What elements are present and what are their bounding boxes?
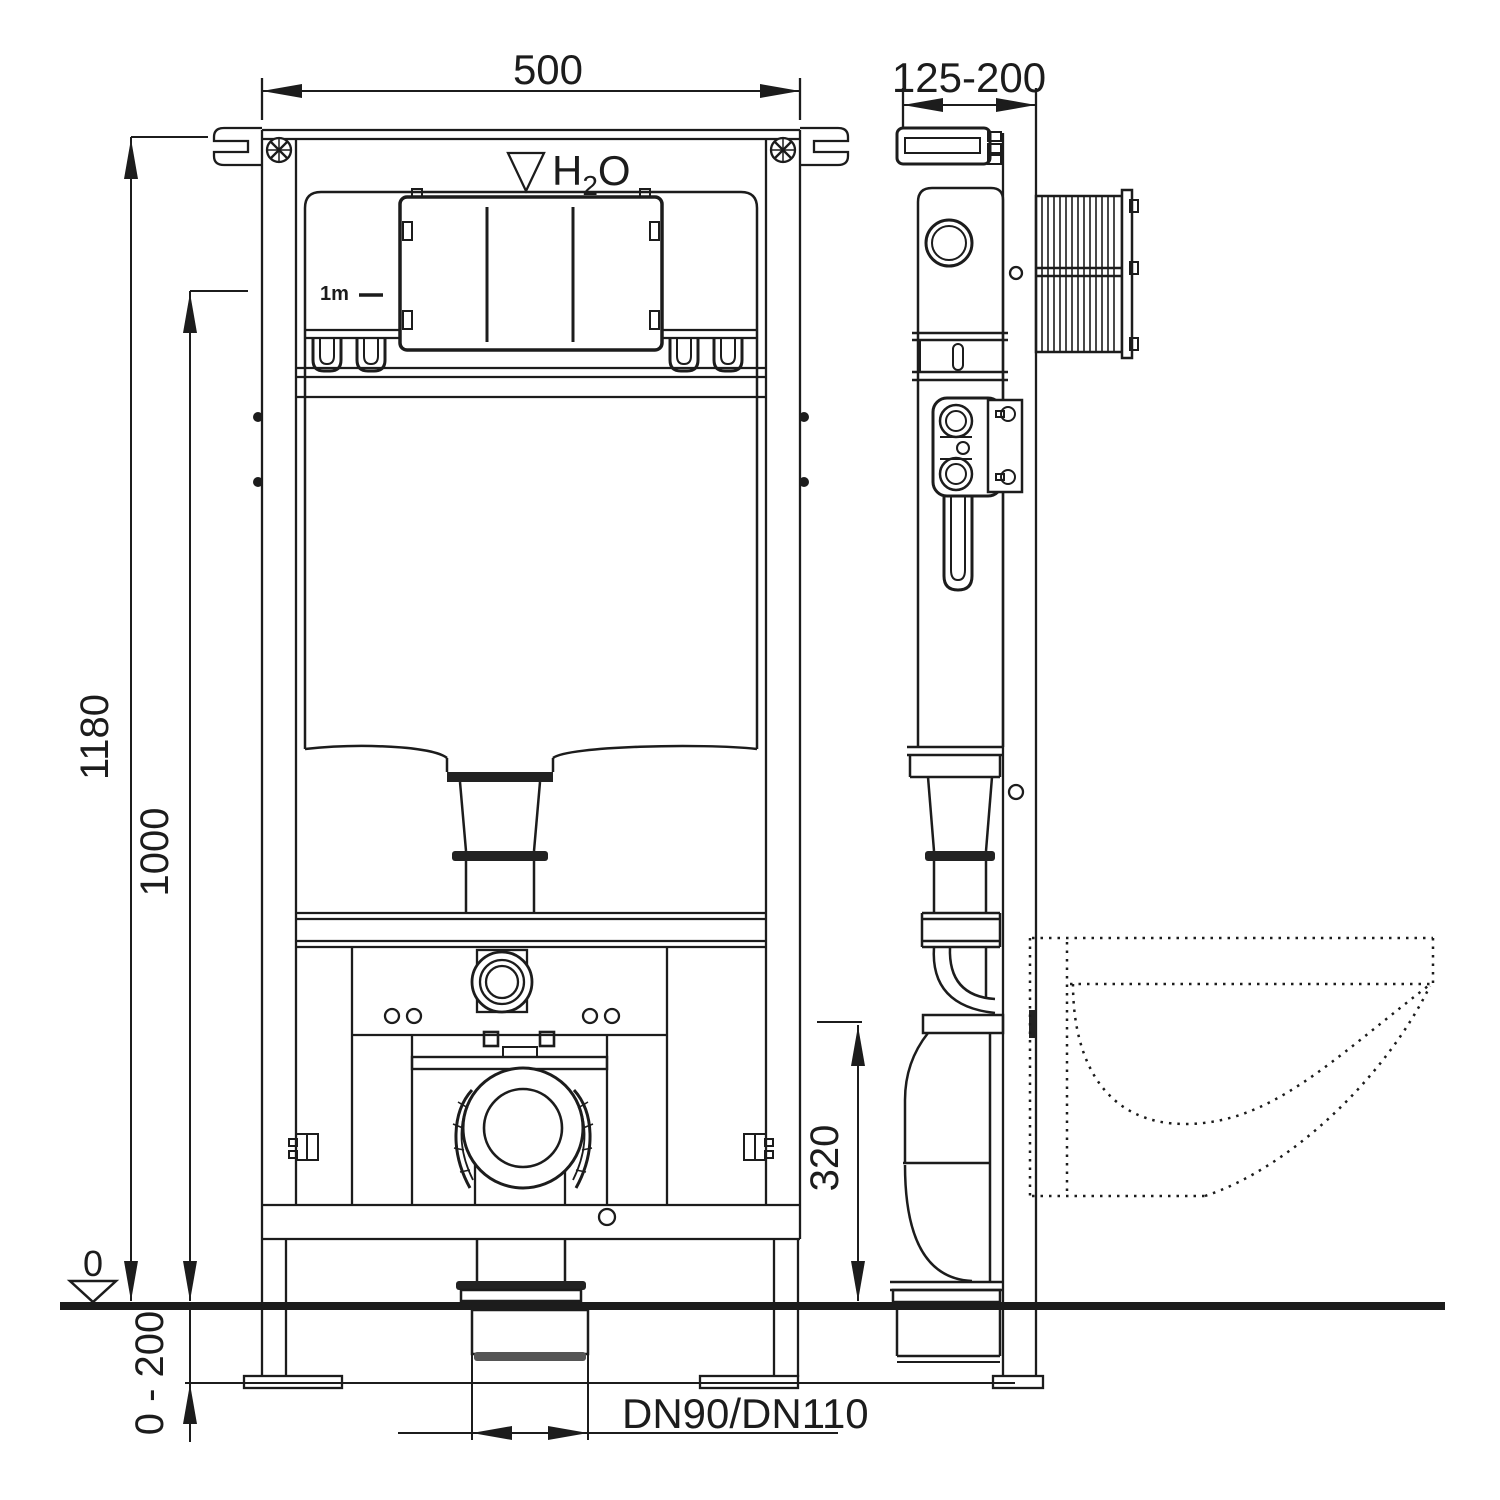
floor-line bbox=[60, 1302, 1445, 1310]
inspection-access-panel bbox=[400, 189, 662, 350]
water-sub: 2 bbox=[582, 170, 598, 201]
label-drain-diameter: DN90/DN110 bbox=[622, 1390, 869, 1437]
water-h: H bbox=[552, 147, 582, 194]
wall-rail-bracket bbox=[897, 128, 1001, 164]
anchor-screw-right-icon bbox=[771, 138, 795, 162]
flush-valve-outlet bbox=[447, 772, 553, 782]
label-floor-level: 0 bbox=[83, 1243, 103, 1284]
installation-frame-drawing: 500 125-200 1180 1000 320 0 - 200 0 DN90… bbox=[0, 0, 1500, 1500]
label-upper-height: 1000 bbox=[133, 808, 177, 897]
label-total-height: 1180 bbox=[73, 694, 117, 780]
water-o: O bbox=[598, 147, 631, 194]
label-below-floor-range: 0 - 200 bbox=[128, 1311, 172, 1436]
technical-drawing-page: 500 125-200 1180 1000 320 0 - 200 0 DN90… bbox=[0, 0, 1500, 1500]
label-outlet-height: 320 bbox=[803, 1125, 847, 1192]
label-front-width: 500 bbox=[513, 46, 583, 93]
anchor-screw-left-icon bbox=[267, 138, 291, 162]
label-side-depth: 125-200 bbox=[892, 54, 1046, 101]
drawing-background bbox=[0, 0, 1500, 1500]
label-scale-note: 1m bbox=[320, 283, 349, 305]
